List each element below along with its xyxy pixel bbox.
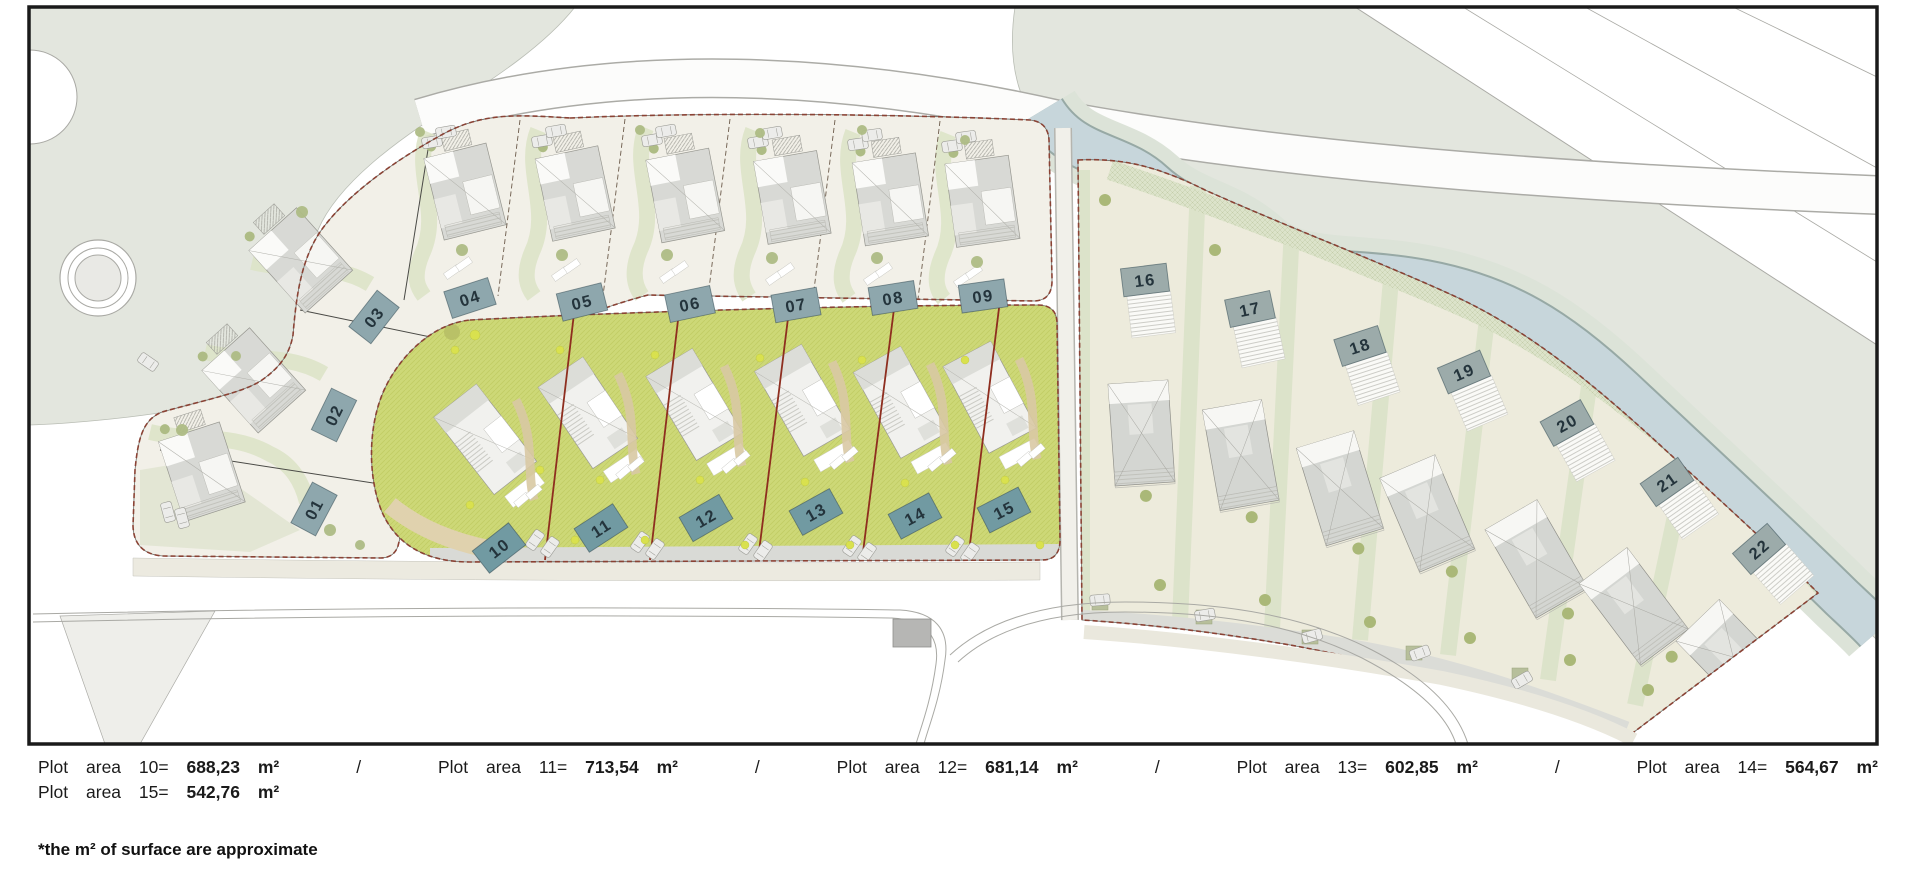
plot-area-15: Plot area 15= 542,76 m² (38, 782, 279, 802)
plot-area-10: Plot area 10= 688,23 m² (38, 755, 279, 780)
plot-area-14: Plot area 14= 564,67 m² (1637, 755, 1878, 780)
svg-text:09: 09 (971, 287, 995, 308)
separator: / (356, 755, 361, 780)
separator: / (755, 755, 760, 780)
svg-text:16: 16 (1133, 271, 1156, 291)
page: 01 02 03 04 05 06 07 08 09 10 11 12 13 1… (0, 0, 1919, 891)
plot-label-09: 09 (958, 279, 1007, 313)
separator: / (1155, 755, 1160, 780)
plot-area-11: Plot area 11= 713,54 m² (438, 755, 678, 780)
utility-building (893, 619, 931, 647)
plot-area-12: Plot area 12= 681,14 m² (837, 755, 1078, 780)
svg-text:07: 07 (784, 295, 808, 316)
roundabout (60, 240, 136, 316)
plot-areas-line-2: Plot area 15= 542,76 m² (38, 780, 279, 805)
plot-area-13: Plot area 13= 602,85 m² (1237, 755, 1478, 780)
separator: / (1555, 755, 1560, 780)
footnote: *the m² of surface are approximate (38, 840, 318, 860)
svg-text:08: 08 (881, 288, 905, 309)
plot-areas-line-1: Plot area 10= 688,23 m² / Plot area 11= … (38, 755, 1878, 780)
